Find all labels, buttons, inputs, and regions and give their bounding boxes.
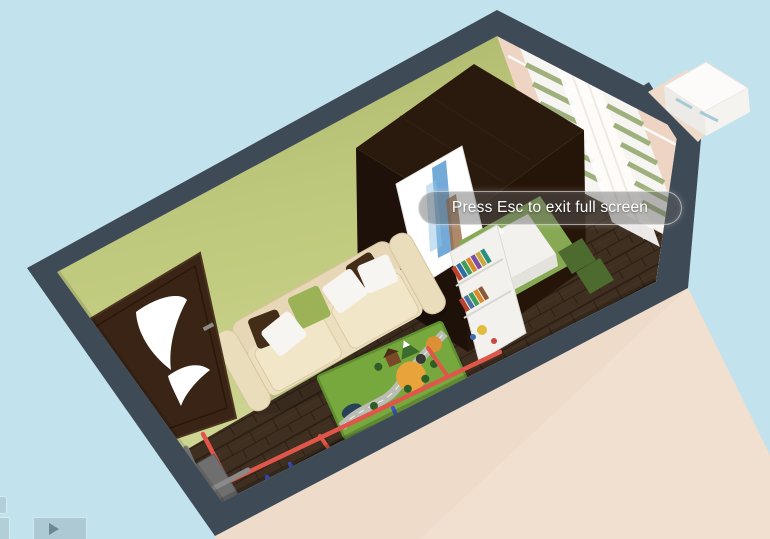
floorplan-scene[interactable]: [0, 0, 770, 539]
play-button[interactable]: [33, 517, 87, 539]
side-tab-top[interactable]: [0, 496, 7, 514]
fullscreen-notification: Press Esc to exit full screen: [418, 191, 682, 225]
fullscreen-3d-view[interactable]: Press Esc to exit full screen: [0, 0, 770, 539]
toy-ball: [477, 325, 487, 335]
side-tab-bottom[interactable]: [0, 517, 10, 539]
fullscreen-notification-text: Press Esc to exit full screen: [452, 199, 648, 217]
play-icon: [49, 523, 59, 535]
